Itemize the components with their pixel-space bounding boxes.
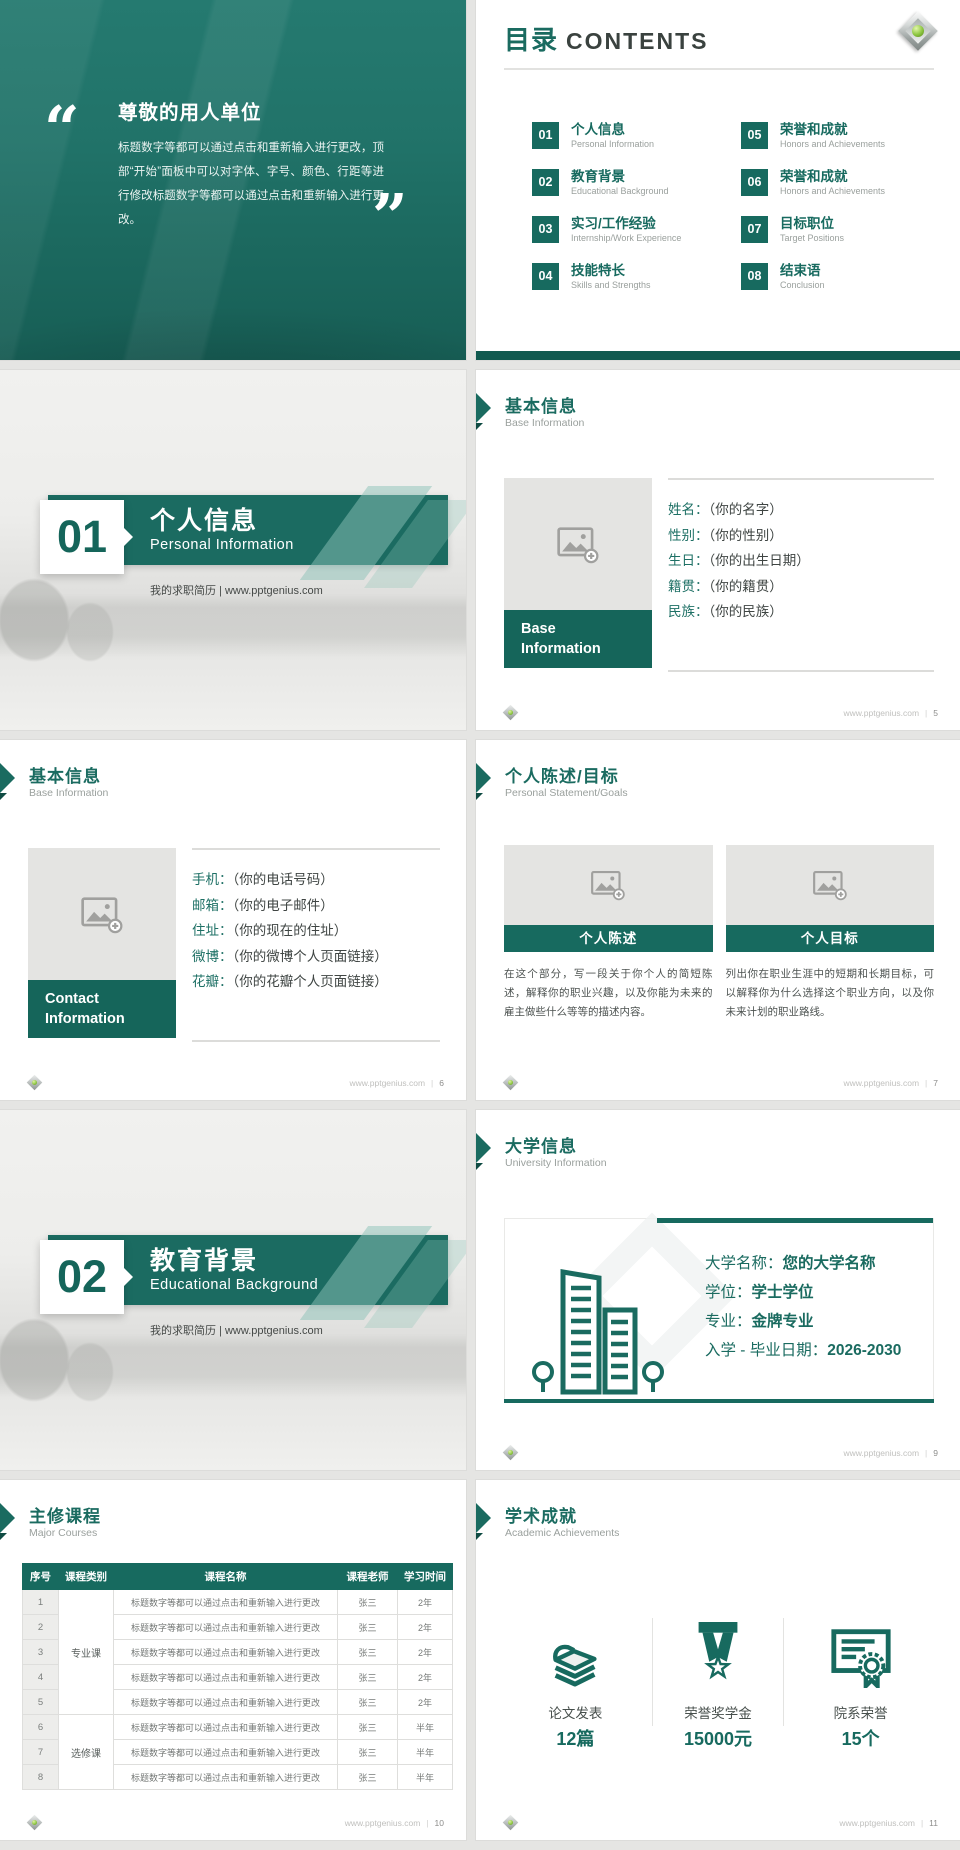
stat-label: 荣誉奖学金 — [647, 1702, 790, 1722]
stat-label: 院系荣誉 — [789, 1702, 932, 1722]
cell-course-name: 标题数字等都可以通过点击和重新输入进行更改 — [114, 1740, 338, 1765]
bottom-accent-bar — [476, 351, 960, 360]
header-arrow-fold-icon — [0, 793, 7, 800]
cell-course-name: 标题数字等都可以通过点击和重新输入进行更改 — [114, 1765, 338, 1790]
slide-subtitle: Personal Statement/Goals — [505, 787, 628, 799]
toc-item-number-badge: 03 — [532, 216, 559, 243]
cell-duration: 2年 — [398, 1640, 453, 1665]
cell-duration: 2年 — [398, 1665, 453, 1690]
toc-item-number-badge: 07 — [741, 216, 768, 243]
page-number: 5 — [933, 708, 938, 718]
toc-item-subtitle: Honors and Achievements — [780, 186, 885, 196]
cell-teacher: 张三 — [338, 1590, 398, 1615]
footer-separator: | — [925, 708, 927, 718]
info-row: 性别：（你的性别） — [668, 523, 934, 549]
mini-diamond-logo-icon — [502, 1076, 520, 1094]
photo-placeholder-frame — [28, 848, 176, 980]
cell-category: 选修课 — [59, 1715, 114, 1790]
section-number-box: 01 — [40, 500, 124, 574]
slide-major-courses: 主修课程 Major Courses 序号 课程类别 课程名称 课程老师 学习时… — [0, 1480, 466, 1840]
slide-header: 学术成就 Academic Achievements — [476, 1480, 960, 1550]
info-row: 入学 - 毕业日期：2026-2030 — [705, 1336, 901, 1365]
header-arrow-fold-icon — [476, 1533, 483, 1540]
slide-title: 个人陈述/目标 — [505, 762, 619, 787]
footer-separator: | — [431, 1078, 433, 1088]
slide-title: 大学信息 — [505, 1132, 577, 1157]
slide-header: 基本信息 Base Information — [0, 740, 466, 810]
info-row: 民族：（你的民族） — [668, 599, 934, 625]
toc-item: 08 结束语 Conclusion — [741, 263, 942, 291]
mini-diamond-logo-icon — [26, 1816, 44, 1834]
quote-title: 尊敬的用人单位 — [118, 96, 262, 125]
slide-header: 大学信息 University Information — [476, 1110, 960, 1180]
slide-header: 个人陈述/目标 Personal Statement/Goals — [476, 740, 960, 810]
info-row: 生日：（你的出生日期） — [668, 548, 934, 574]
toc-item: 02 教育背景 Educational Background — [532, 169, 733, 197]
cell-duration: 2年 — [398, 1690, 453, 1715]
footer-separator: | — [925, 1448, 927, 1458]
papers-stack-icon — [544, 1626, 606, 1688]
slide-title: 基本信息 — [505, 392, 577, 417]
image-placeholder-icon — [80, 895, 124, 934]
field-label: 邮箱： — [192, 898, 233, 913]
field-label: 籍贯： — [668, 579, 709, 594]
cell-duration: 半年 — [398, 1765, 453, 1790]
cell-course-name: 标题数字等都可以通过点击和重新输入进行更改 — [114, 1615, 338, 1640]
footer-site: www.pptgenius.com — [843, 1078, 919, 1088]
open-quote-icon: “ — [44, 98, 80, 160]
cell-course-name: 标题数字等都可以通过点击和重新输入进行更改 — [114, 1590, 338, 1615]
quote-body: 标题数字等都可以通过点击和重新输入进行更改，顶部“开始”面板中可以对字体、字号、… — [118, 136, 384, 232]
header-arrow-icon — [476, 1133, 491, 1163]
field-value: 学士学位 — [752, 1284, 814, 1301]
header-arrow-fold-icon — [0, 1533, 7, 1540]
field-value: （你的民族） — [709, 604, 783, 619]
slide-contents: 目录CONTENTS 01 个人信息 Personal Information … — [476, 0, 960, 360]
info-row: 姓名：（你的名字） — [668, 497, 934, 523]
toc-item-title: 技能特长 — [571, 263, 651, 278]
photo-placeholder: Contact Information — [28, 848, 176, 1038]
numbox-notch — [124, 528, 133, 546]
slide-title: 基本信息 — [29, 762, 101, 787]
footer-site: www.pptgenius.com — [843, 708, 919, 718]
field-label: 入学 - 毕业日期： — [705, 1342, 827, 1359]
photo-caption: Contact Information — [45, 990, 145, 1029]
column-header: 序号 — [23, 1564, 59, 1590]
brand-diamond-logo-icon — [896, 14, 940, 56]
field-value: （你的出生日期） — [709, 553, 810, 568]
slide-subtitle: Academic Achievements — [505, 1527, 619, 1539]
page-number: 11 — [929, 1818, 938, 1828]
image-placeholder-icon — [556, 525, 600, 564]
toc-item-number-badge: 05 — [741, 122, 768, 149]
card-top-accent — [657, 1218, 933, 1223]
slide-cover-quote: “ 尊敬的用人单位 标题数字等都可以通过点击和重新输入进行更改，顶部“开始”面板… — [0, 0, 466, 360]
section-title-en: Personal Information — [150, 537, 294, 553]
footer-separator: | — [925, 1078, 927, 1088]
cell-teacher: 张三 — [338, 1715, 398, 1740]
section-title-zh: 个人信息 — [150, 501, 258, 537]
statement-cards: 个人陈述 在这个部分，写一段关于你个人的简短陈述，解释你的职业兴趣，以及你能为未… — [504, 845, 934, 1022]
cell-category: 专业课 — [59, 1590, 114, 1715]
header-arrow-icon — [476, 1503, 491, 1533]
toc-item-subtitle: Conclusion — [780, 280, 825, 290]
stat-item: 论文发表 12篇 — [504, 1608, 647, 1751]
field-label: 性别： — [668, 528, 709, 543]
slide-section-01: 个人信息 Personal Information 01 我的求职简历 | ww… — [0, 370, 466, 730]
field-label: 学位： — [705, 1284, 752, 1301]
slide-university-information: 大学信息 University Information 大学名称：您的大学名称 … — [476, 1110, 960, 1470]
toc-item-subtitle: Target Positions — [780, 233, 844, 243]
medal-star-icon — [690, 1622, 746, 1688]
toc-item: 03 实习/工作经验 Internship/Work Experience — [532, 216, 733, 244]
stat-value: 15000元 — [647, 1725, 790, 1751]
contents-list: 01 个人信息 Personal Information 05 荣誉和成就 Ho… — [532, 122, 942, 291]
slide-subtitle: Base Information — [505, 417, 584, 429]
field-value: （你的籍贯） — [709, 579, 783, 594]
certificate-icon — [828, 1622, 894, 1688]
section-number: 02 — [40, 1240, 124, 1314]
footer-separator: | — [426, 1818, 428, 1828]
toc-item-number-badge: 06 — [741, 169, 768, 196]
achievement-stats: 论文发表 12篇 荣誉奖学金 15000元 — [504, 1608, 932, 1751]
image-placeholder-icon — [590, 869, 626, 901]
field-label: 花瓣： — [192, 974, 233, 989]
field-value: （你的电子邮件） — [233, 898, 334, 913]
header-arrow-fold-icon — [476, 1163, 483, 1170]
info-row: 住址：（你的现在的住址） — [192, 918, 440, 944]
cell-duration: 2年 — [398, 1590, 453, 1615]
column-header: 学习时间 — [398, 1564, 453, 1590]
cell-teacher: 张三 — [338, 1640, 398, 1665]
info-row: 手机：（你的电话号码） — [192, 867, 440, 893]
info-row: 花瓣：（你的花瓣个人页面链接） — [192, 969, 440, 995]
university-fields: 大学名称：您的大学名称 学位：学士学位 专业：金牌专业 入学 - 毕业日期：20… — [705, 1249, 901, 1365]
info-panel: 姓名：（你的名字） 性别：（你的性别） 生日：（你的出生日期） 籍贯：（你的籍贯… — [668, 478, 934, 672]
photo-caption-band: Base Information — [504, 610, 652, 668]
cell-teacher: 张三 — [338, 1740, 398, 1765]
footer-site: www.pptgenius.com — [345, 1818, 421, 1828]
toc-item-title: 结束语 — [780, 263, 825, 278]
slide-personal-statement: 个人陈述/目标 Personal Statement/Goals 个人陈述 在这… — [476, 740, 960, 1100]
table-row: 1 专业课 标题数字等都可以通过点击和重新输入进行更改 张三 2年 — [23, 1590, 453, 1615]
header-arrow-icon — [0, 763, 15, 793]
page-number: 7 — [933, 1078, 938, 1088]
toc-item-title: 个人信息 — [571, 122, 654, 137]
contents-title: 目录CONTENTS — [504, 20, 709, 57]
slide-title: 学术成就 — [505, 1502, 577, 1527]
stat-value: 12篇 — [504, 1725, 647, 1751]
divider — [504, 68, 934, 70]
cell-teacher: 张三 — [338, 1615, 398, 1640]
toc-item: 01 个人信息 Personal Information — [532, 122, 733, 150]
footer-site: www.pptgenius.com — [349, 1078, 425, 1088]
field-label: 微博： — [192, 949, 233, 964]
header-arrow-icon — [0, 1503, 15, 1533]
cell-index: 8 — [23, 1765, 59, 1790]
page-number: 6 — [439, 1078, 444, 1088]
field-value: （你的电话号码） — [233, 872, 334, 887]
field-value: 金牌专业 — [752, 1313, 814, 1330]
toc-item-number-badge: 01 — [532, 122, 559, 149]
cell-duration: 2年 — [398, 1615, 453, 1640]
toc-item-title: 实习/工作经验 — [571, 216, 681, 231]
footer-site: www.pptgenius.com — [839, 1818, 915, 1828]
slide-subtitle: Major Courses — [29, 1527, 97, 1539]
divider — [783, 1618, 784, 1726]
field-value: （你的花瓣个人页面链接） — [233, 974, 388, 989]
toc-item-subtitle: Honors and Achievements — [780, 139, 885, 149]
field-label: 姓名： — [668, 502, 709, 517]
numbox-notch — [124, 1268, 133, 1286]
photo-placeholder: Base Information — [504, 478, 652, 668]
field-value: 您的大学名称 — [783, 1255, 876, 1272]
statement-card: 个人陈述 在这个部分，写一段关于你个人的简短陈述，解释你的职业兴趣，以及你能为未… — [504, 845, 713, 1022]
cell-teacher: 张三 — [338, 1765, 398, 1790]
field-label: 手机： — [192, 872, 233, 887]
card-text: 在这个部分，写一段关于你个人的简短陈述，解释你的职业兴趣，以及你能为未来的雇主做… — [504, 965, 713, 1022]
field-value: （你的微博个人页面链接） — [233, 949, 388, 964]
slide-header: 主修课程 Major Courses — [0, 1480, 466, 1550]
stat-item: 院系荣誉 15个 — [789, 1608, 932, 1751]
toc-item-subtitle: Skills and Strengths — [571, 280, 651, 290]
slide-base-information: 基本信息 Base Information Base Information 姓… — [476, 370, 960, 730]
slide-footer: www.pptgenius.com|9 — [502, 1445, 938, 1461]
cell-index: 5 — [23, 1690, 59, 1715]
field-label: 专业： — [705, 1313, 752, 1330]
table-row: 6 选修课 标题数字等都可以通过点击和重新输入进行更改 张三 半年 — [23, 1715, 453, 1740]
toc-item-number-badge: 02 — [532, 169, 559, 196]
cell-course-name: 标题数字等都可以通过点击和重新输入进行更改 — [114, 1690, 338, 1715]
contents-title-en: CONTENTS — [566, 28, 709, 54]
image-placeholder-icon — [812, 869, 848, 901]
toc-item-number-badge: 08 — [741, 263, 768, 290]
header-arrow-fold-icon — [476, 423, 483, 430]
info-row: 学位：学士学位 — [705, 1278, 901, 1307]
page-number: 9 — [933, 1448, 938, 1458]
card-text: 列出你在职业生涯中的短期和长期目标，可以解释你为什么选择这个职业方向，以及你未来… — [726, 965, 935, 1022]
university-card: 大学名称：您的大学名称 学位：学士学位 专业：金牌专业 入学 - 毕业日期：20… — [504, 1218, 934, 1403]
cell-index: 7 — [23, 1740, 59, 1765]
card-bottom-accent — [504, 1399, 934, 1403]
field-value: （你的现在的住址） — [233, 923, 348, 938]
toc-item-subtitle: Internship/Work Experience — [571, 233, 681, 243]
cell-teacher: 张三 — [338, 1665, 398, 1690]
toc-item-title: 教育背景 — [571, 169, 669, 184]
mini-diamond-logo-icon — [26, 1076, 44, 1094]
page-number: 10 — [435, 1818, 444, 1828]
table-header-row: 序号 课程类别 课程名称 课程老师 学习时间 — [23, 1564, 453, 1590]
stat-item: 荣誉奖学金 15000元 — [647, 1608, 790, 1751]
info-row: 籍贯：（你的籍贯） — [668, 574, 934, 600]
slide-contact-information: 基本信息 Base Information Contact Informatio… — [0, 740, 466, 1100]
statement-card: 个人目标 列出你在职业生涯中的短期和长期目标，可以解释你为什么选择这个职业方向，… — [726, 845, 935, 1022]
mini-diamond-logo-icon — [502, 1446, 520, 1464]
cell-teacher: 张三 — [338, 1690, 398, 1715]
column-header: 课程名称 — [114, 1564, 338, 1590]
photo-caption-band: Contact Information — [28, 980, 176, 1038]
cell-course-name: 标题数字等都可以通过点击和重新输入进行更改 — [114, 1715, 338, 1740]
slide-academic-achievements: 学术成就 Academic Achievements 论文发表 12篇 — [476, 1480, 960, 1840]
slide-footer: www.pptgenius.com|7 — [502, 1075, 938, 1091]
slide-header: 基本信息 Base Information — [476, 370, 960, 440]
field-value: （你的性别） — [709, 528, 783, 543]
slide-footer: www.pptgenius.com|11 — [502, 1815, 938, 1831]
photo-placeholder-frame — [504, 478, 652, 610]
section-number-box: 02 — [40, 1240, 124, 1314]
footer-separator: | — [921, 1818, 923, 1828]
toc-item: 07 目标职位 Target Positions — [741, 216, 942, 244]
info-row: 专业：金牌专业 — [705, 1307, 901, 1336]
cell-index: 2 — [23, 1615, 59, 1640]
stat-label: 论文发表 — [504, 1702, 647, 1722]
mini-diamond-logo-icon — [502, 1816, 520, 1834]
slide-subtitle: University Information — [505, 1157, 607, 1169]
contents-title-zh: 目录 — [504, 25, 558, 55]
footer-site: www.pptgenius.com — [843, 1448, 919, 1458]
divider — [652, 1618, 653, 1726]
info-row: 邮箱：（你的电子邮件） — [192, 893, 440, 919]
toc-item: 06 荣誉和成就 Honors and Achievements — [741, 169, 942, 197]
slide-title: 主修课程 — [29, 1502, 101, 1527]
cell-duration: 半年 — [398, 1715, 453, 1740]
field-label: 生日： — [668, 553, 709, 568]
toc-item-subtitle: Personal Information — [571, 139, 654, 149]
cell-course-name: 标题数字等都可以通过点击和重新输入进行更改 — [114, 1665, 338, 1690]
section-tagline: 我的求职简历 | www.pptgenius.com — [150, 582, 323, 598]
photo-caption: Base Information — [521, 620, 621, 659]
slide-footer: www.pptgenius.com|6 — [26, 1075, 444, 1091]
photo-placeholder-frame — [504, 845, 713, 925]
section-number: 01 — [40, 500, 124, 574]
close-quote-icon: ” — [372, 186, 408, 248]
buildings-icon — [525, 1256, 675, 1398]
field-label: 民族： — [668, 604, 709, 619]
field-label: 住址： — [192, 923, 233, 938]
card-title-band: 个人目标 — [726, 925, 935, 952]
toc-item-title: 荣誉和成就 — [780, 169, 885, 184]
header-arrow-icon — [476, 763, 491, 793]
toc-item-number-badge: 04 — [532, 263, 559, 290]
toc-item-title: 目标职位 — [780, 216, 844, 231]
slide-footer: www.pptgenius.com|10 — [26, 1815, 444, 1831]
cell-index: 3 — [23, 1640, 59, 1665]
column-header: 课程类别 — [59, 1564, 114, 1590]
toc-item-title: 荣誉和成就 — [780, 122, 885, 137]
info-panel: 手机：（你的电话号码） 邮箱：（你的电子邮件） 住址：（你的现在的住址） 微博：… — [192, 848, 440, 1042]
section-title-en: Educational Background — [150, 1277, 318, 1293]
card-title-band: 个人陈述 — [504, 925, 713, 952]
info-row: 大学名称：您的大学名称 — [705, 1249, 901, 1278]
slide-section-02: 教育背景 Educational Background 02 我的求职简历 | … — [0, 1110, 466, 1470]
field-label: 大学名称： — [705, 1255, 783, 1272]
cell-index: 4 — [23, 1665, 59, 1690]
slide-footer: www.pptgenius.com|5 — [502, 705, 938, 721]
toc-item-subtitle: Educational Background — [571, 186, 669, 196]
header-arrow-fold-icon — [476, 793, 483, 800]
header-arrow-icon — [476, 393, 491, 423]
section-title-zh: 教育背景 — [150, 1241, 258, 1277]
info-row: 微博：（你的微博个人页面链接） — [192, 944, 440, 970]
photo-placeholder-frame — [726, 845, 935, 925]
field-value: 2026-2030 — [827, 1342, 901, 1359]
mini-diamond-logo-icon — [502, 706, 520, 724]
slide-subtitle: Base Information — [29, 787, 108, 799]
field-value: （你的名字） — [709, 502, 783, 517]
stat-value: 15个 — [789, 1725, 932, 1751]
courses-table: 序号 课程类别 课程名称 课程老师 学习时间 1 专业课 标题数字等都可以通过点… — [22, 1563, 453, 1790]
toc-item: 05 荣誉和成就 Honors and Achievements — [741, 122, 942, 150]
cell-index: 1 — [23, 1590, 59, 1615]
cell-duration: 半年 — [398, 1740, 453, 1765]
column-header: 课程老师 — [338, 1564, 398, 1590]
section-tagline: 我的求职简历 | www.pptgenius.com — [150, 1322, 323, 1338]
cell-course-name: 标题数字等都可以通过点击和重新输入进行更改 — [114, 1640, 338, 1665]
toc-item: 04 技能特长 Skills and Strengths — [532, 263, 733, 291]
cell-index: 6 — [23, 1715, 59, 1740]
